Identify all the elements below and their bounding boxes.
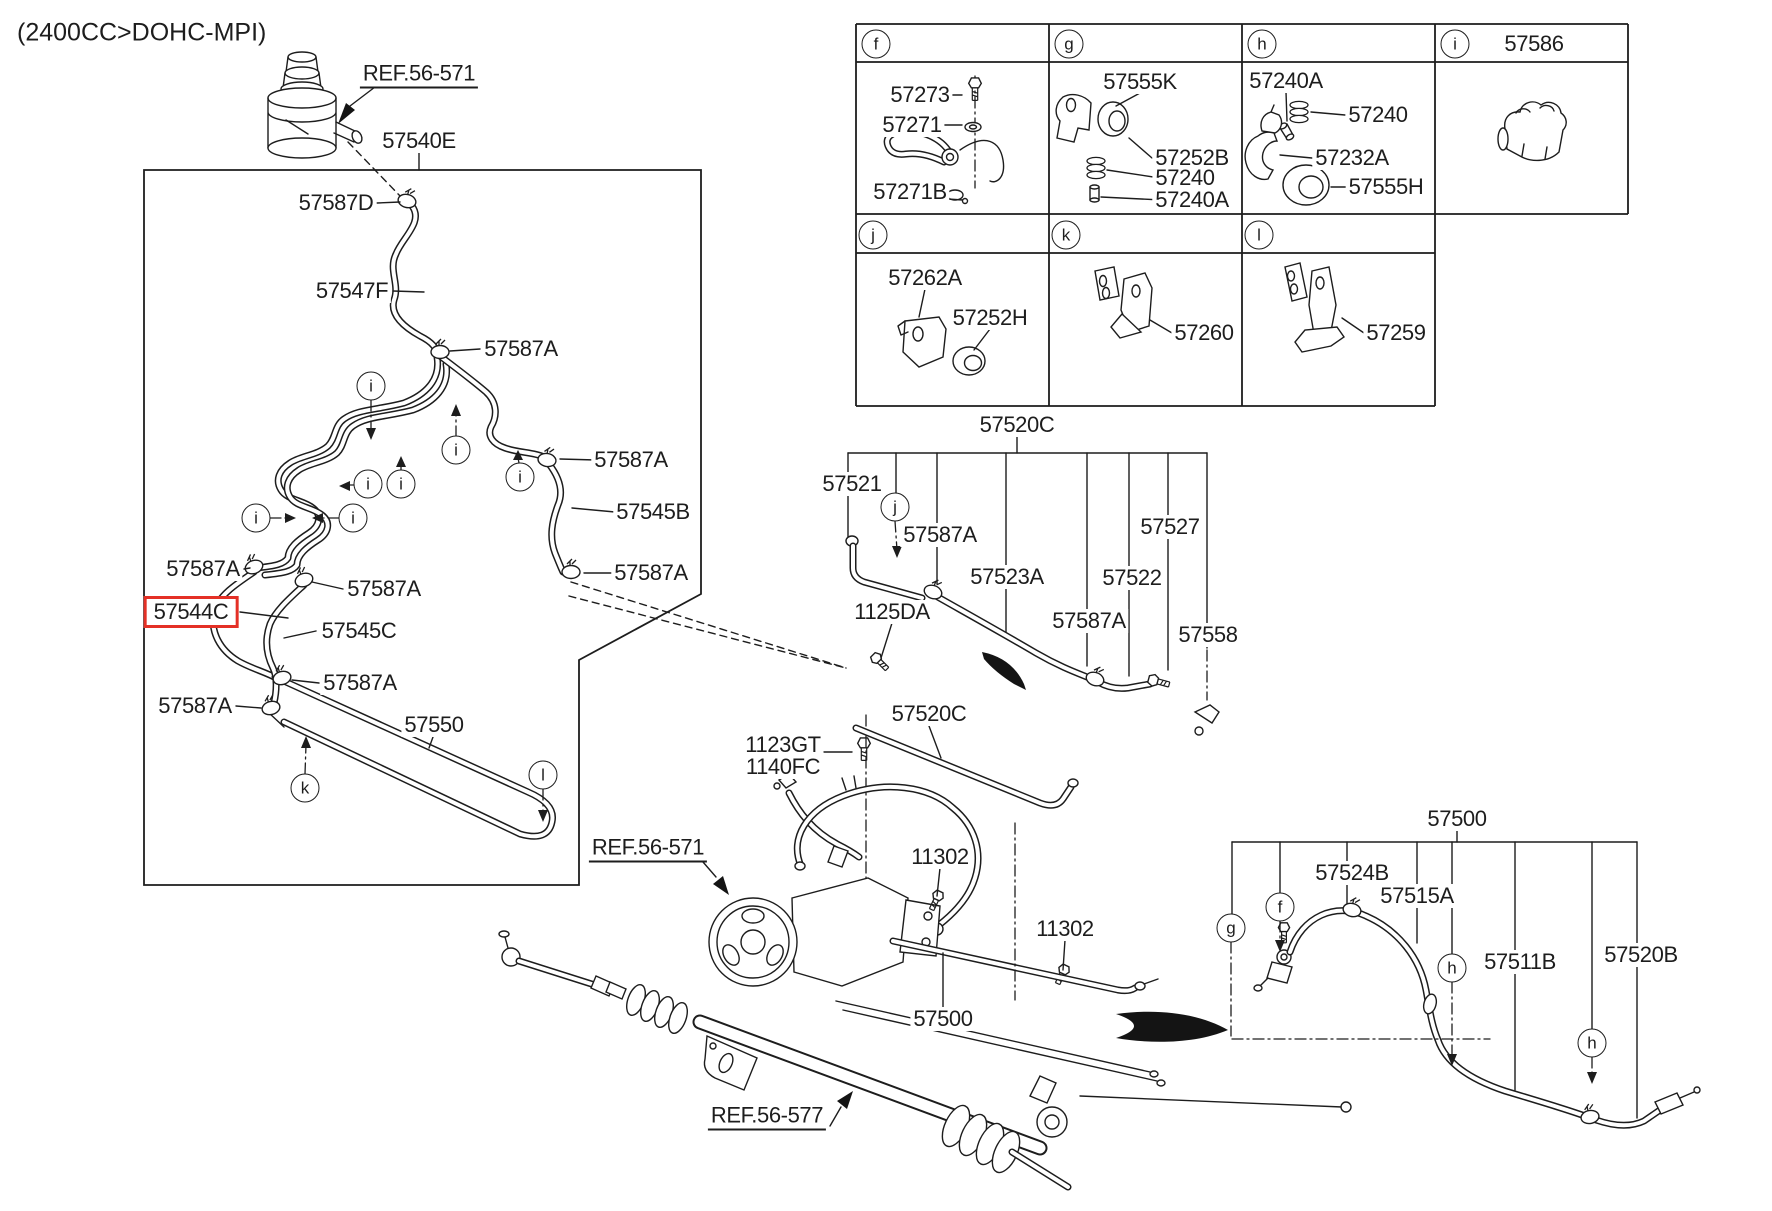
ref-link-56-571-pump[interactable]: REF.56-571 — [589, 836, 707, 863]
engine-variant-title: (2400CC>DOHC-MPI) — [14, 20, 269, 47]
part-label-57587a-8[interactable]: 57587A — [900, 523, 979, 547]
table-header-callout-k: k — [1052, 221, 1081, 250]
group-label-57520c[interactable]: 57520C — [977, 413, 1058, 437]
ref-link-56-577-rack[interactable]: REF.56-577 — [708, 1104, 826, 1131]
diagram-callout-g: g — [1217, 914, 1246, 943]
diagram-callout-i-3: i — [506, 463, 535, 492]
part-label-11302-2[interactable]: 11302 — [1033, 917, 1097, 941]
part-label-57544c-highlighted[interactable]: 57544C — [144, 596, 239, 628]
diagram-callout-i-5: i — [387, 470, 416, 499]
diagram-callout-i-7: i — [339, 504, 368, 533]
parts-diagram-page: (2400CC>DOHC-MPI) REF.56-571 57540E 5758… — [0, 0, 1772, 1211]
part-label-57527[interactable]: 57527 — [1137, 515, 1202, 539]
part-label-57511b[interactable]: 57511B — [1481, 950, 1559, 974]
diagram-callout-f: f — [1266, 893, 1295, 922]
table-header-callout-j: j — [859, 221, 888, 250]
cell-k-parts-drawing — [1095, 267, 1152, 338]
part-label-57523a[interactable]: 57523A — [967, 565, 1046, 589]
part-label-57587a-5[interactable]: 57587A — [344, 577, 423, 601]
part-label-57524b[interactable]: 57524B — [1312, 861, 1391, 885]
table-header-callout-g: g — [1055, 30, 1084, 59]
part-label-1125da[interactable]: 1125DA — [851, 600, 932, 624]
part-label-57232a[interactable]: 57232A — [1312, 146, 1391, 170]
part-label-57271[interactable]: 57271 — [879, 113, 944, 137]
cell-l-parts-drawing — [1285, 263, 1344, 352]
return-hose-group-drawing — [1231, 831, 1700, 1125]
part-label-57555k[interactable]: 57555K — [1100, 70, 1179, 94]
diagram-callout-i-1: i — [357, 372, 386, 401]
steering-rack-drawing — [499, 931, 1351, 1187]
part-label-57545c[interactable]: 57545C — [319, 619, 400, 643]
part-label-57521[interactable]: 57521 — [819, 472, 884, 496]
part-label-57587a-3[interactable]: 57587A — [611, 561, 690, 585]
diagram-callout-i-4: i — [354, 470, 383, 499]
part-label-57587a-6[interactable]: 57587A — [320, 671, 399, 695]
diagram-callout-h-2: h — [1578, 1029, 1607, 1058]
part-label-57540e[interactable]: 57540E — [379, 129, 458, 153]
part-label-57500-pipe[interactable]: 57500 — [910, 1007, 975, 1031]
table-header-callout-f: f — [862, 30, 891, 59]
reservoir-drawing — [268, 52, 364, 158]
diagram-callout-h-1: h — [1438, 954, 1467, 983]
part-label-57520c-pipe[interactable]: 57520C — [889, 702, 970, 726]
part-label-57522[interactable]: 57522 — [1099, 566, 1164, 590]
diagram-callout-l: l — [529, 761, 558, 790]
part-label-57547f[interactable]: 57547F — [313, 279, 391, 303]
detail-box-outline — [144, 170, 701, 885]
part-label-57240a-h[interactable]: 57240A — [1246, 69, 1325, 93]
table-header-callout-l: l — [1245, 221, 1274, 250]
part-label-57555h[interactable]: 57555H — [1346, 175, 1427, 199]
table-header-callout-h: h — [1248, 30, 1277, 59]
part-label-57515a[interactable]: 57515A — [1377, 884, 1456, 908]
part-label-57587a-1[interactable]: 57587A — [481, 337, 560, 361]
cell-g-parts-drawing — [1056, 95, 1128, 202]
part-label-57587a-4[interactable]: 57587A — [163, 557, 242, 581]
part-label-57587d[interactable]: 57587D — [296, 191, 377, 215]
part-label-11302-1[interactable]: 11302 — [908, 845, 972, 869]
callout-arrows — [270, 400, 1597, 1084]
part-label-57259[interactable]: 57259 — [1363, 321, 1428, 345]
table-header-callout-i: i — [1441, 30, 1470, 59]
group-label-57500[interactable]: 57500 — [1424, 807, 1489, 831]
part-label-57558[interactable]: 57558 — [1175, 623, 1240, 647]
part-label-57260[interactable]: 57260 — [1171, 321, 1236, 345]
part-label-57587a-2[interactable]: 57587A — [591, 448, 670, 472]
part-label-57520b[interactable]: 57520B — [1601, 943, 1680, 967]
part-label-57273[interactable]: 57273 — [887, 83, 952, 107]
part-label-57586[interactable]: 57586 — [1501, 32, 1566, 56]
part-label-57240a-g[interactable]: 57240A — [1152, 188, 1231, 212]
part-label-57271b[interactable]: 57271B — [870, 180, 949, 204]
part-label-57550[interactable]: 57550 — [401, 713, 466, 737]
diagram-callout-k: k — [291, 774, 320, 803]
part-label-57252h[interactable]: 57252H — [950, 306, 1031, 330]
part-label-1140fc[interactable]: 1140FC — [743, 755, 823, 779]
part-label-57545b[interactable]: 57545B — [613, 500, 692, 524]
diagram-callout-j: j — [881, 493, 910, 522]
part-label-57240-h[interactable]: 57240 — [1345, 103, 1410, 127]
part-label-57587a-7[interactable]: 57587A — [155, 694, 234, 718]
diagram-callout-i-6: i — [242, 504, 271, 533]
cell-i-parts-drawing — [1498, 102, 1566, 161]
part-label-57587a-9[interactable]: 57587A — [1049, 609, 1128, 633]
part-label-57262a[interactable]: 57262A — [885, 266, 964, 290]
ref-link-56-571-top[interactable]: REF.56-571 — [360, 62, 478, 89]
diagram-callout-i-2: i — [442, 436, 471, 465]
